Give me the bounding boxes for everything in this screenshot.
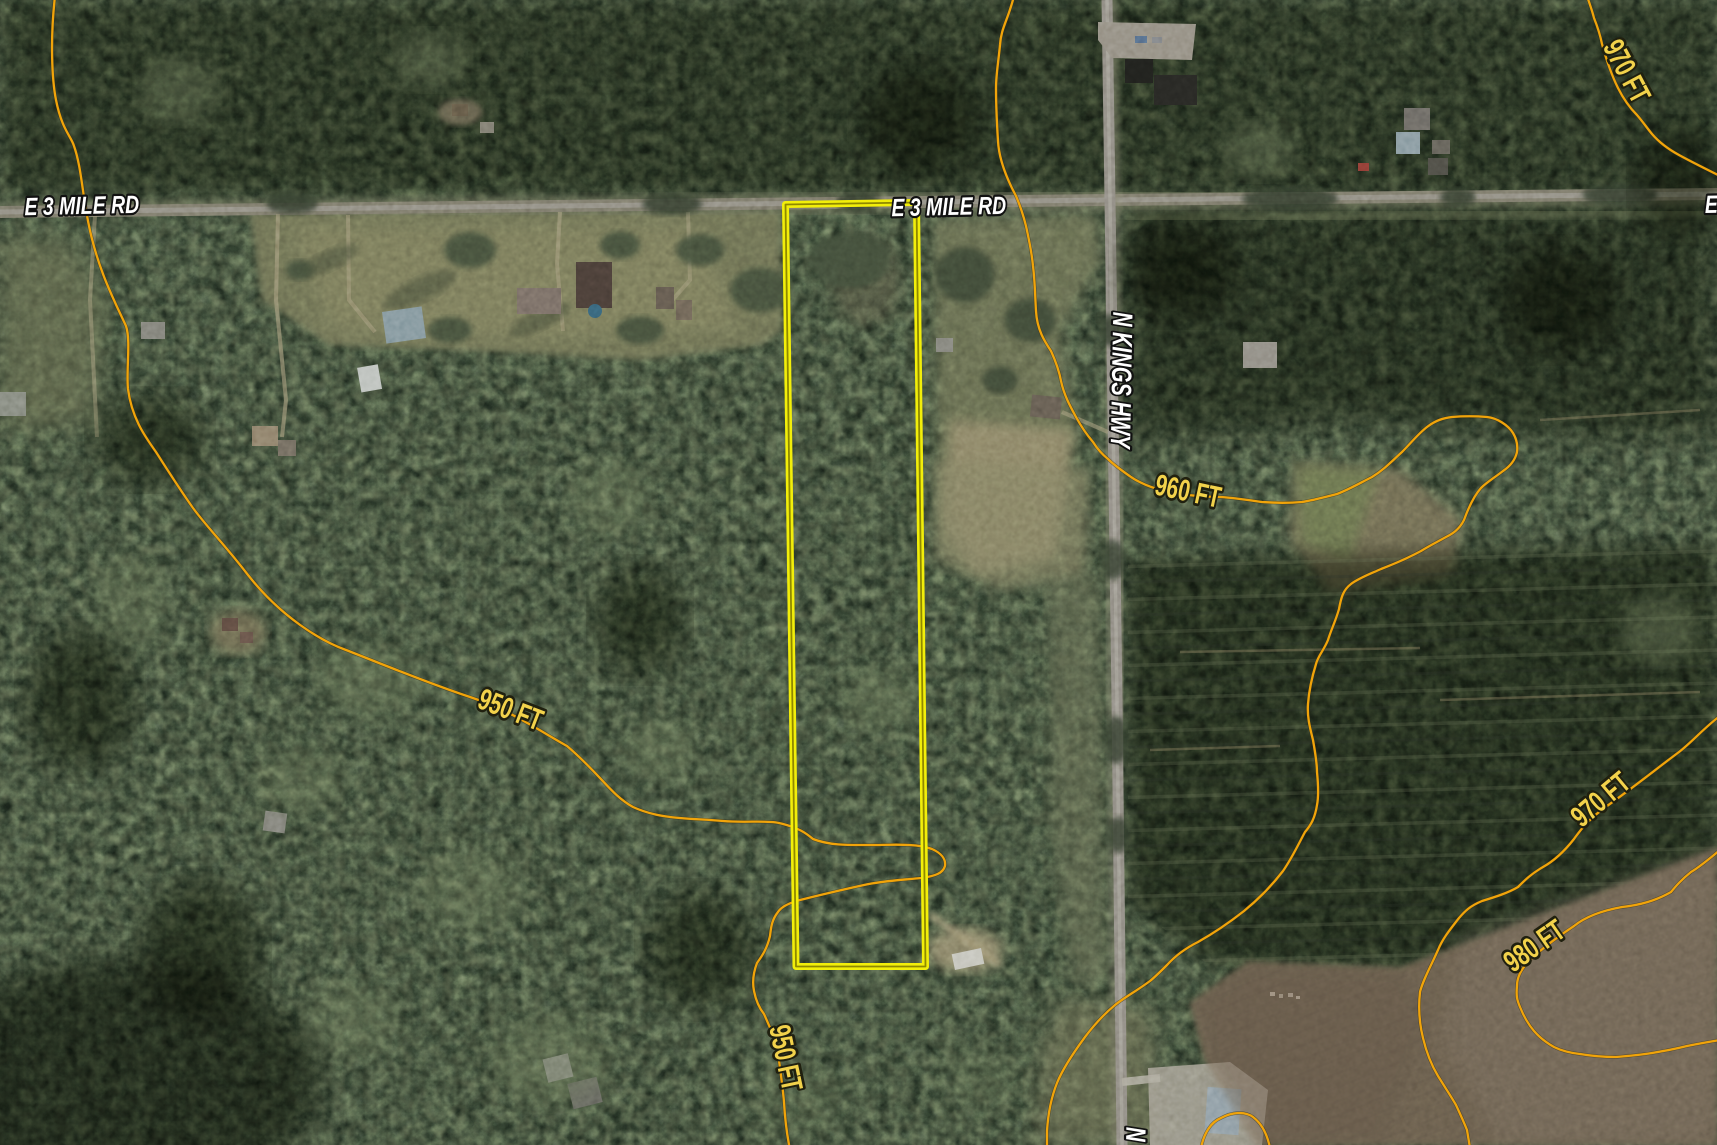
svg-text:N KI: N KI [1119,1127,1151,1145]
svg-text:E 3: E 3 [1705,190,1717,218]
svg-text:N KINGS HWY: N KINGS HWY [1104,312,1137,451]
svg-text:E 3 MILE RD: E 3 MILE RD [891,192,1006,222]
svg-text:E 3 MILE RD: E 3 MILE RD [24,191,139,221]
